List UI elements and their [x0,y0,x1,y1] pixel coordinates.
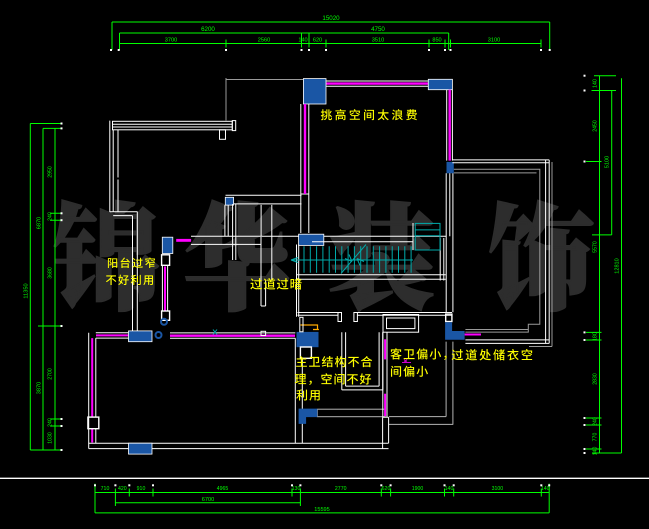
svg-text:2830: 2830 [592,373,598,385]
svg-text:240: 240 [48,212,54,221]
svg-text:140: 140 [592,79,598,88]
svg-text:620: 620 [382,486,391,492]
svg-text:2450: 2450 [592,120,598,132]
svg-text:620: 620 [313,38,322,44]
svg-text:420: 420 [118,486,127,492]
svg-text:6870: 6870 [37,217,43,229]
svg-text:3510: 3510 [372,38,384,44]
svg-text:3100: 3100 [492,486,504,492]
svg-text:240: 240 [592,417,598,426]
svg-text:4965: 4965 [217,486,229,492]
svg-text:3680: 3680 [48,267,54,279]
svg-text:3100: 3100 [488,38,500,44]
svg-text:770: 770 [592,433,598,442]
svg-text:910: 910 [137,486,146,492]
svg-text:3700: 3700 [165,38,177,44]
svg-text:2770: 2770 [335,486,347,492]
svg-text:1030: 1030 [48,432,54,444]
svg-text:140: 140 [445,486,454,492]
svg-text:6200: 6200 [201,26,215,33]
svg-text:15595: 15595 [314,507,330,513]
svg-text:6700: 6700 [202,497,214,503]
svg-text:140: 140 [298,38,307,44]
svg-text:850: 850 [432,38,441,44]
svg-text:2950: 2950 [48,166,54,178]
svg-text:1900: 1900 [412,486,424,492]
svg-text:140: 140 [592,447,598,456]
svg-text:140: 140 [541,486,550,492]
svg-text:12810: 12810 [614,258,620,274]
svg-text:130: 130 [292,486,301,492]
svg-text:240: 240 [48,418,54,427]
svg-text:180: 180 [592,332,598,341]
svg-text:4750: 4750 [371,26,385,33]
svg-text:11350: 11350 [24,283,30,298]
svg-text:15020: 15020 [322,15,340,22]
svg-text:2560: 2560 [258,38,270,44]
svg-text:3870: 3870 [37,382,43,394]
svg-text:710: 710 [101,486,110,492]
svg-text:5570: 5570 [592,241,598,253]
svg-text:2700: 2700 [48,368,54,380]
svg-text:5100: 5100 [605,156,611,168]
